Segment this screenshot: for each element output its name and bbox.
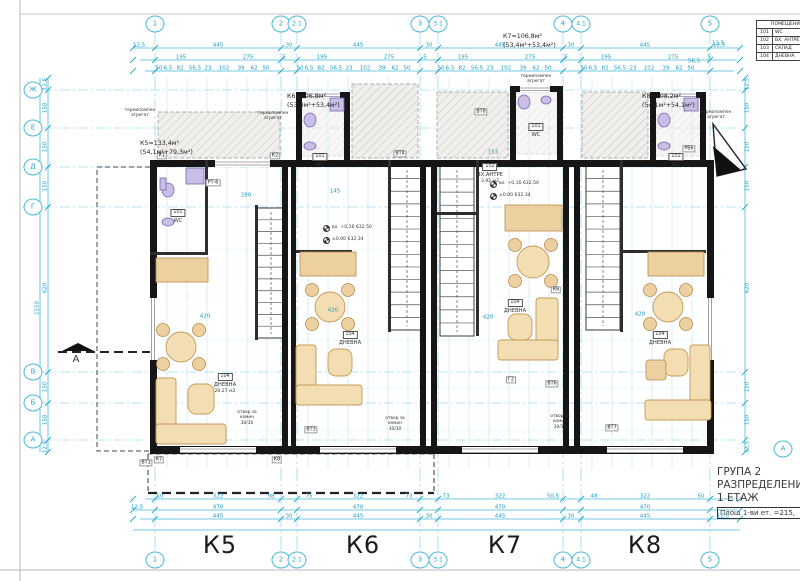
dimension-label: 420 [635, 312, 646, 318]
dimension-label: 150 [43, 142, 49, 153]
dimension-label: 23 [346, 66, 353, 72]
unit-area-annotation: К7=106,8м²(53,4м²+53,4м²) [503, 32, 556, 50]
dimension-label: 50 [404, 66, 411, 72]
element-tag: ВТ1 [139, 459, 152, 466]
dimension-label: 470 [213, 505, 224, 511]
dimension-label: 75 [306, 494, 313, 500]
element-tag: ВТ6 [545, 380, 558, 387]
dimension-label: 620 [745, 283, 751, 294]
dimension-label: 56,5 [614, 66, 626, 72]
dimension-label: 12,5 [745, 441, 751, 453]
note-label: отвор закомин30/30 [237, 410, 256, 426]
dimension-label: 12,5 [717, 514, 729, 520]
room-label: 104ДНЕВНА [649, 320, 671, 347]
unit-area-annotation: К5=133,4м²(54,1м²+79,3м²) [140, 139, 193, 157]
dimension-label: 1150 [35, 301, 41, 315]
unit-area-annotation: К8=108,2м²(54,1м²+54,1м²) [642, 92, 695, 110]
dimension-label: 50 [157, 494, 164, 500]
dimension-label: 12,5 [133, 43, 145, 49]
dimension-label: 420 [200, 314, 211, 320]
dimension-label: 322 [640, 494, 651, 500]
dimension-label: 322 [353, 494, 364, 500]
elevation-icon [323, 237, 330, 244]
element-tag: РБ6 [682, 145, 695, 152]
elevation-marker: ±0,00 632,34 [490, 193, 531, 200]
dimension-label: 195 [601, 55, 612, 61]
note-label: термопомпенагрегат [258, 111, 289, 122]
dimension-label: 6,5 [305, 66, 314, 72]
dimension-label: 82 [459, 66, 466, 72]
dimension-label: 5 [707, 55, 711, 61]
elevation-icon [490, 181, 497, 188]
dimension-label: 145 [330, 189, 341, 195]
dimension-label: 30 [286, 43, 293, 49]
dimension-label: 102 [501, 66, 512, 72]
dimension-label: 82 [318, 66, 325, 72]
note-label: термопомпенагрегат [125, 108, 156, 119]
dimension-label: 102 [644, 66, 655, 72]
dimension-label: 445 [640, 43, 651, 49]
dimension-label: 150 [745, 181, 751, 192]
axis-bubble-top: 3.1 [429, 16, 448, 33]
dimension-label: 445 [213, 43, 224, 49]
element-tag: Г2 [506, 376, 516, 383]
dimension-label: 30 [426, 514, 433, 520]
dimension-label: 6,5 [446, 66, 455, 72]
dimension-label: 62 [676, 66, 683, 72]
room-label: 101WC [170, 198, 185, 225]
dimension-label: 48 [591, 494, 598, 500]
dimension-label: 23 [487, 66, 494, 72]
dimension-label: 50 [438, 66, 445, 72]
dimension-label: 39 [379, 66, 386, 72]
dimension-label: 30 [568, 514, 575, 520]
dimension-label: 50 [688, 66, 695, 72]
axis-bubble-left: Б [24, 395, 43, 412]
axis-bubble-top: 4 [554, 16, 573, 33]
dimension-label: 445 [353, 43, 364, 49]
room-label: 102ВХ.АНТРЕ3,92 м2 [477, 152, 503, 184]
dimension-label: 150 [745, 415, 751, 426]
dimension-label: 56,5 [189, 66, 201, 72]
element-tag: ВТ8 [474, 108, 487, 115]
dimension-label: 195 [458, 55, 469, 61]
dimension-label: 445 [640, 514, 651, 520]
dimension-label: 5 [564, 55, 568, 61]
dimension-label: 195 [176, 55, 187, 61]
dimension-label: 30 [568, 43, 575, 49]
dimension-label: 50 [581, 66, 588, 72]
dimension-label: 5 [423, 55, 427, 61]
dimension-label: 73 [406, 494, 413, 500]
axis-bubble-bottom: 4.1 [572, 552, 591, 569]
elevation-marker: вх. +0,16 632,50 [323, 225, 372, 232]
dimension-label: 470 [640, 505, 651, 511]
dimension-label: 23 [205, 66, 212, 72]
dimension-label: 150 [43, 382, 49, 393]
dimension-label: 275 [525, 55, 536, 61]
dimension-label: 23 [630, 66, 637, 72]
elevation-marker: ±0,00 632,34 [323, 237, 364, 244]
dimension-label: 420 [483, 315, 494, 321]
dimension-label: 12,5 [43, 441, 49, 453]
axis-bubble-bottom: 5 [701, 552, 720, 569]
dimension-label: 275 [668, 55, 679, 61]
dimension-label: 30 [426, 43, 433, 49]
dimension-label: 56,5 [330, 66, 342, 72]
axis-bubble-top: 2.1 [288, 16, 307, 33]
dimension-label: 56,5 [471, 66, 483, 72]
dimension-label: 322 [213, 494, 224, 500]
elevation-marker: вх. +0,16 632,50 [490, 181, 539, 188]
axis-bubble-bottom: 3 [411, 552, 430, 569]
legend-row: 103СКЛАД [757, 45, 800, 53]
element-tag: К7 [154, 456, 164, 463]
dimension-label: 150 [745, 142, 751, 153]
axis-bubble-top: 5 [701, 16, 720, 33]
dimension-label: 102 [219, 66, 230, 72]
elevation-icon [323, 225, 330, 232]
section-line-marker [58, 343, 152, 352]
axis-bubble-bottom: 4 [554, 552, 573, 569]
dimension-label: 50 [545, 66, 552, 72]
room-label: 101WC [528, 112, 543, 139]
dimension-label: 12,5 [712, 41, 724, 47]
axis-bubble-left: Е [24, 120, 43, 137]
dimension-label: 12,5 [43, 78, 49, 90]
legend-row: 102ВХ. АНТРЕ [757, 37, 800, 45]
dimension-label: 445 [213, 514, 224, 520]
dimension-label: 150 [43, 181, 49, 192]
room-label: 101WC [668, 142, 683, 169]
axis-bubble-bottom: 2.1 [288, 552, 307, 569]
note-label: отвор закомин30/30 [385, 416, 404, 432]
element-tag: К8 [272, 456, 282, 463]
title-floor: 1 ЕТАЖ [717, 492, 800, 505]
axis-bubble-bottom: 1 [146, 552, 165, 569]
dimension-label: 62 [392, 66, 399, 72]
unit-area-annotation: К6=106,8м²(53,4м²+53,4м²) [287, 92, 340, 110]
dimension-label: 470 [353, 505, 364, 511]
dimension-label: 102 [360, 66, 371, 72]
dimension-label: 150 [43, 415, 49, 426]
floor-area-note: Площ 1-ви ет. =215, [717, 507, 800, 519]
room-label: 104ДНЕВНА [339, 320, 361, 347]
title-block: ГРУПА 2 РАЗПРЕДЕЛЕНИЕ 1 ЕТАЖ Площ 1-ви е… [717, 466, 800, 519]
dimension-label: 39 [663, 66, 670, 72]
legend-row: 101WC [757, 29, 800, 37]
elevation-icon [490, 193, 497, 200]
dimension-label: 50 [297, 66, 304, 72]
dimension-label: 39 [520, 66, 527, 72]
axis-bubble-top: 1 [146, 16, 165, 33]
element-tag: ВТ3 [304, 426, 317, 433]
dimension-label: 445 [495, 514, 506, 520]
dimension-label: 50 [156, 66, 163, 72]
axis-bubble-bottom: 3.1 [429, 552, 448, 569]
axis-bubble-left: Ж [24, 82, 43, 99]
note-label: термопомпенагрегат [521, 74, 552, 85]
note-label: отвор закомин30/30 [550, 414, 569, 430]
section-bubble: А [774, 441, 793, 458]
element-tag: К6 [551, 286, 561, 293]
dimension-label: 50 [263, 66, 270, 72]
axis-bubble-top: 4.1 [572, 16, 591, 33]
dimension-label: 5 [282, 55, 286, 61]
element-tag: РТ-6 [206, 179, 221, 186]
element-tag: ВТ7 [605, 424, 618, 431]
dimension-label: 420 [328, 308, 339, 314]
floor-plan-sheet: ГРУПА 2 РАЗПРЕДЕЛЕНИЕ 1 ЕТАЖ Площ 1-ви е… [0, 0, 800, 581]
dimension-label: 82 [177, 66, 184, 72]
dimension-label: 195 [317, 55, 328, 61]
axis-bubble-left: Д [24, 159, 43, 176]
dimension-label: 30 [286, 514, 293, 520]
legend-row: 104ДНЕВНА [757, 53, 800, 60]
dimension-label: 620 [43, 283, 49, 294]
dimension-label: 322 [495, 494, 506, 500]
axis-bubble-left: А [24, 432, 43, 449]
dimension-label: 50,5 [547, 494, 559, 500]
dimension-label: 150 [43, 103, 49, 114]
dimension-label: 150 [745, 382, 751, 393]
unit-label: К8 [628, 531, 662, 559]
unit-label: К5 [203, 531, 237, 559]
axis-bubble-left: В [24, 364, 43, 381]
dimension-label: 82 [602, 66, 609, 72]
note-label: термопомпенагрегат [701, 110, 732, 121]
element-tag: К2 [270, 152, 280, 159]
dimension-label: 62 [251, 66, 258, 72]
dimension-label: 275 [243, 55, 254, 61]
dimension-label: 62 [533, 66, 540, 72]
dimension-label: 50 [698, 494, 705, 500]
unit-label: К7 [488, 531, 522, 559]
dimension-label: 150 [745, 103, 751, 114]
dimension-label: 98 [268, 494, 275, 500]
axis-bubble-left: Г [24, 199, 43, 216]
unit-label: К6 [346, 531, 380, 559]
dimension-label: 73 [443, 494, 450, 500]
room-label: 104ДНЕВНА [504, 288, 526, 315]
room-label: 101WC [312, 142, 327, 169]
element-tag: ВТ4 [393, 150, 406, 157]
dimension-label: 6,5 [164, 66, 173, 72]
floor-plan-canvas [0, 0, 800, 581]
dimension-label: 275 [384, 55, 395, 61]
north-arrow-icon [713, 124, 746, 176]
title-group: ГРУПА 2 [717, 466, 800, 479]
dimension-label: 12,5 [131, 505, 143, 511]
dimension-label: 12,5 [745, 78, 751, 90]
room-label: 104ДНЕВНА26,27 м2 [214, 362, 236, 394]
dimension-label: 39 [238, 66, 245, 72]
legend-header: ПОМЕЩЕНИЯ [757, 21, 800, 29]
section-letter: А [73, 354, 80, 365]
terrace-hatch [158, 84, 700, 158]
dimension-label: 56,5 [688, 59, 700, 65]
dimension-label: 6,5 [589, 66, 598, 72]
title-sheet: РАЗПРЕДЕЛЕНИЕ [717, 479, 800, 492]
dimension-label: 280 [241, 193, 252, 199]
legend-table: ПОМЕЩЕНИЯ 101WC102ВХ. АНТРЕ103СКЛАД104ДН… [756, 20, 800, 61]
dimension-label: 470 [495, 505, 506, 511]
axis-bubble-top: 3 [411, 16, 430, 33]
dimension-label: 445 [353, 514, 364, 520]
